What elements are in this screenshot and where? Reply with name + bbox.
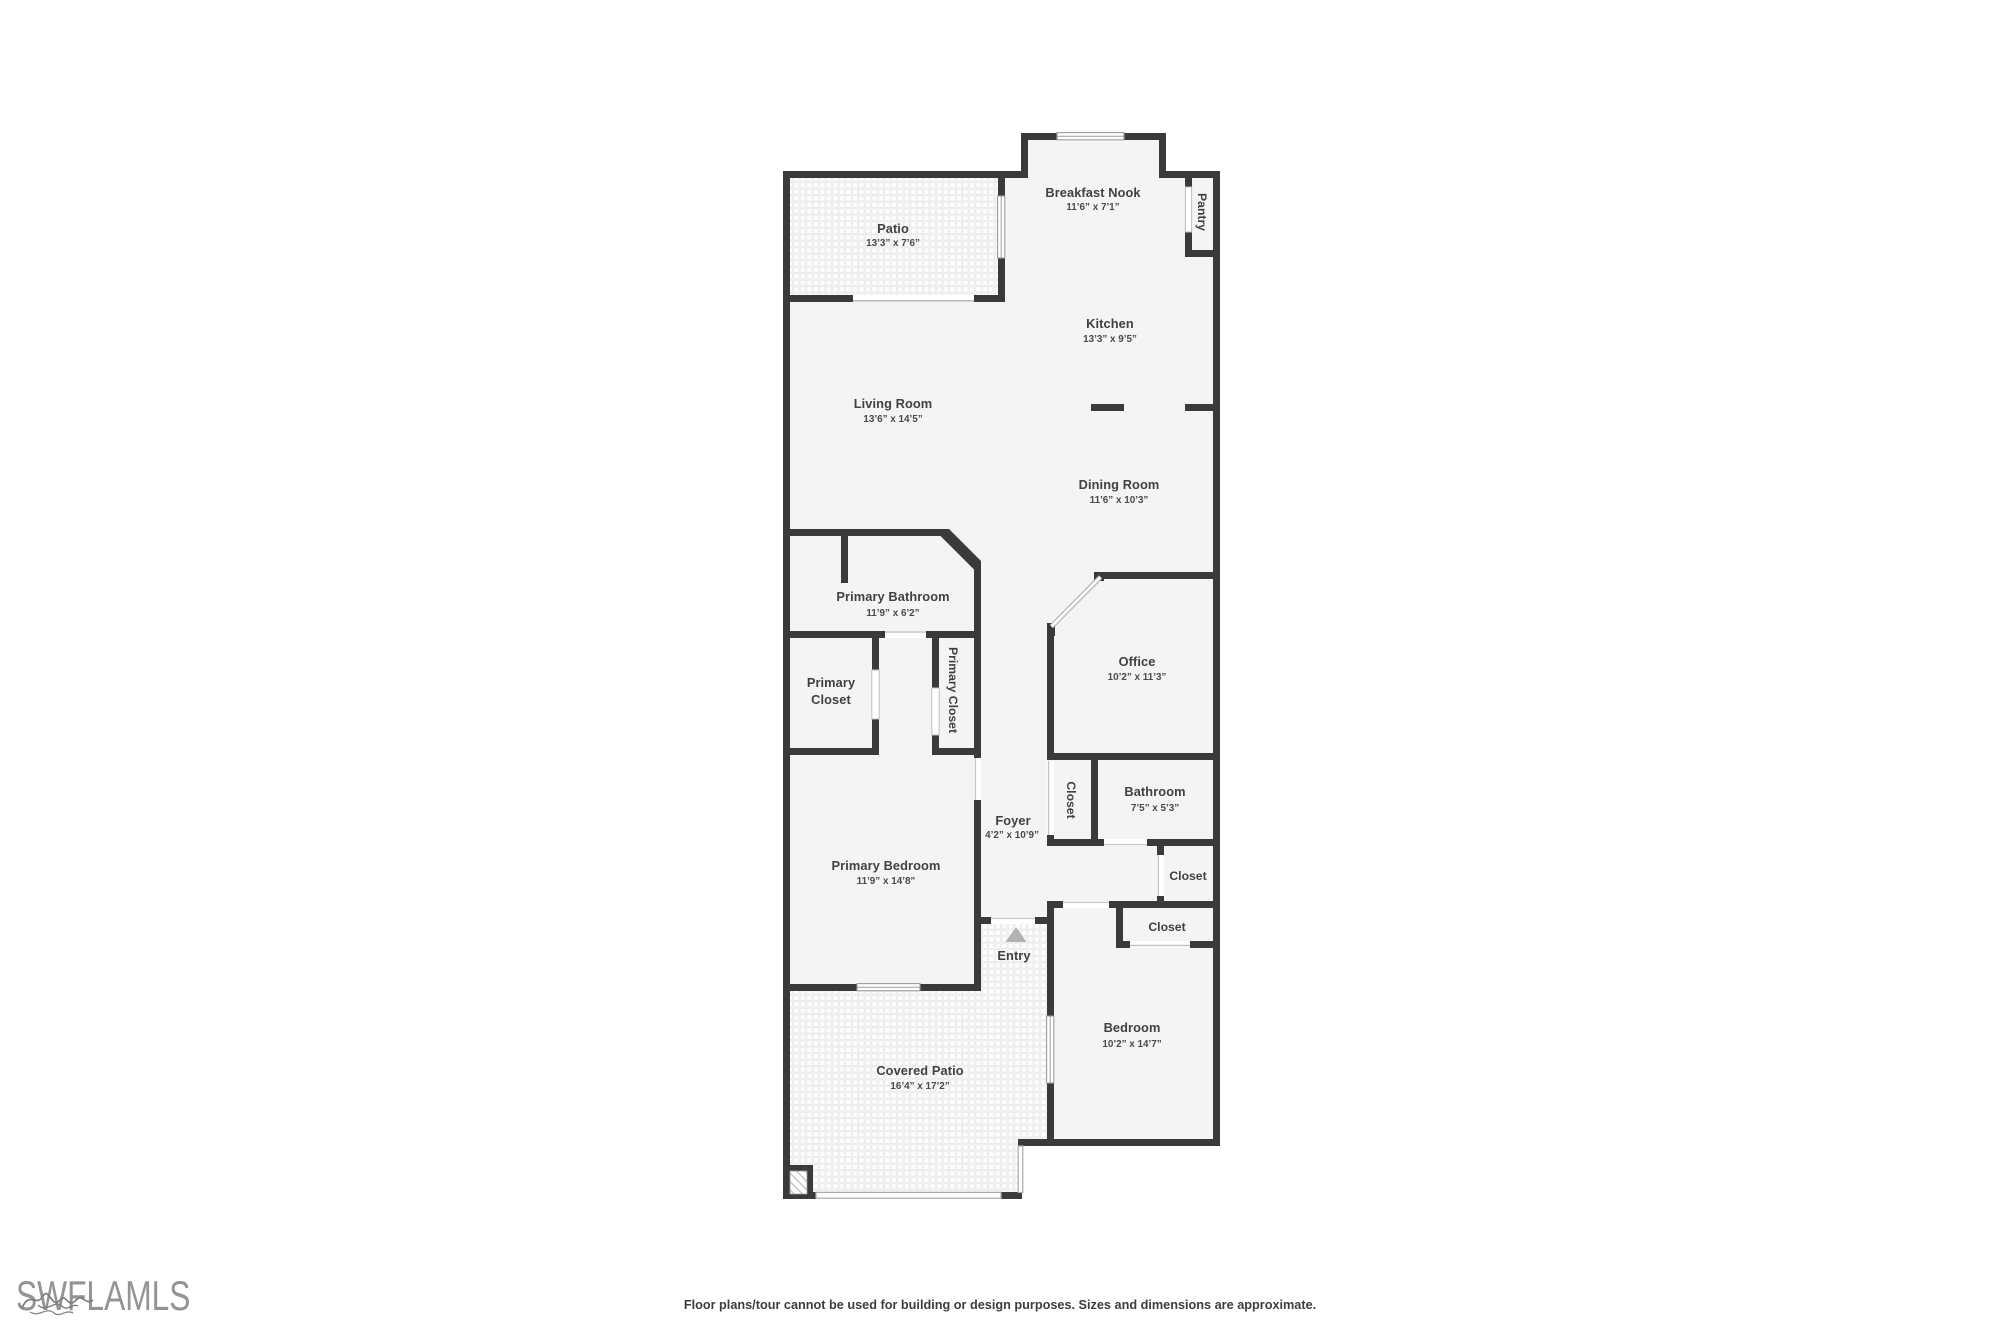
svg-text:4’2” x 10’9”: 4’2” x 10’9” bbox=[985, 830, 1039, 841]
svg-text:Covered Patio: Covered Patio bbox=[876, 1063, 963, 1078]
svg-text:Breakfast Nook: Breakfast Nook bbox=[1045, 185, 1141, 200]
svg-text:Primary Closet: Primary Closet bbox=[946, 647, 960, 733]
svg-text:Floor plans/tour cannot be use: Floor plans/tour cannot be used for buil… bbox=[684, 1298, 1316, 1312]
svg-text:Bathroom: Bathroom bbox=[1124, 784, 1185, 799]
svg-text:10’2” x 11’3”: 10’2” x 11’3” bbox=[1108, 672, 1167, 683]
svg-text:11’6” x 7’1”: 11’6” x 7’1” bbox=[1066, 202, 1119, 213]
svg-text:Patio: Patio bbox=[877, 221, 909, 236]
svg-text:Primary: Primary bbox=[807, 675, 856, 690]
svg-text:13’3” x 9’5”: 13’3” x 9’5” bbox=[1083, 334, 1137, 345]
svg-text:13’3” x 7’6”: 13’3” x 7’6” bbox=[866, 238, 920, 249]
svg-text:13’6” x 14’5”: 13’6” x 14’5” bbox=[863, 414, 922, 425]
svg-text:11’9” x 6’2”: 11’9” x 6’2” bbox=[866, 608, 919, 619]
svg-text:Pantry: Pantry bbox=[1195, 193, 1209, 231]
svg-text:Closet: Closet bbox=[1064, 781, 1078, 818]
svg-text:Closet: Closet bbox=[1148, 920, 1185, 934]
svg-text:Closet: Closet bbox=[811, 692, 851, 707]
svg-text:Office: Office bbox=[1119, 654, 1156, 669]
svg-text:10’2” x 14’7”: 10’2” x 14’7” bbox=[1102, 1039, 1161, 1050]
svg-text:Closet: Closet bbox=[1169, 869, 1206, 883]
svg-text:11’6” x 10’3”: 11’6” x 10’3” bbox=[1090, 495, 1149, 506]
svg-text:Primary Bedroom: Primary Bedroom bbox=[832, 858, 941, 873]
svg-text:Bedroom: Bedroom bbox=[1104, 1020, 1161, 1035]
svg-text:11’9” x 14’8”: 11’9” x 14’8” bbox=[857, 876, 916, 887]
svg-text:Primary Bathroom: Primary Bathroom bbox=[836, 589, 949, 604]
svg-text:16’4” x 17’2”: 16’4” x 17’2” bbox=[890, 1081, 949, 1092]
svg-text:Foyer: Foyer bbox=[995, 813, 1030, 828]
svg-text:Living Room: Living Room bbox=[854, 396, 933, 411]
svg-text:Entry: Entry bbox=[997, 948, 1031, 963]
svg-text:Kitchen: Kitchen bbox=[1086, 316, 1134, 331]
svg-text:Dining Room: Dining Room bbox=[1079, 477, 1160, 492]
svg-text:7’5” x 5’3”: 7’5” x 5’3” bbox=[1131, 803, 1179, 814]
